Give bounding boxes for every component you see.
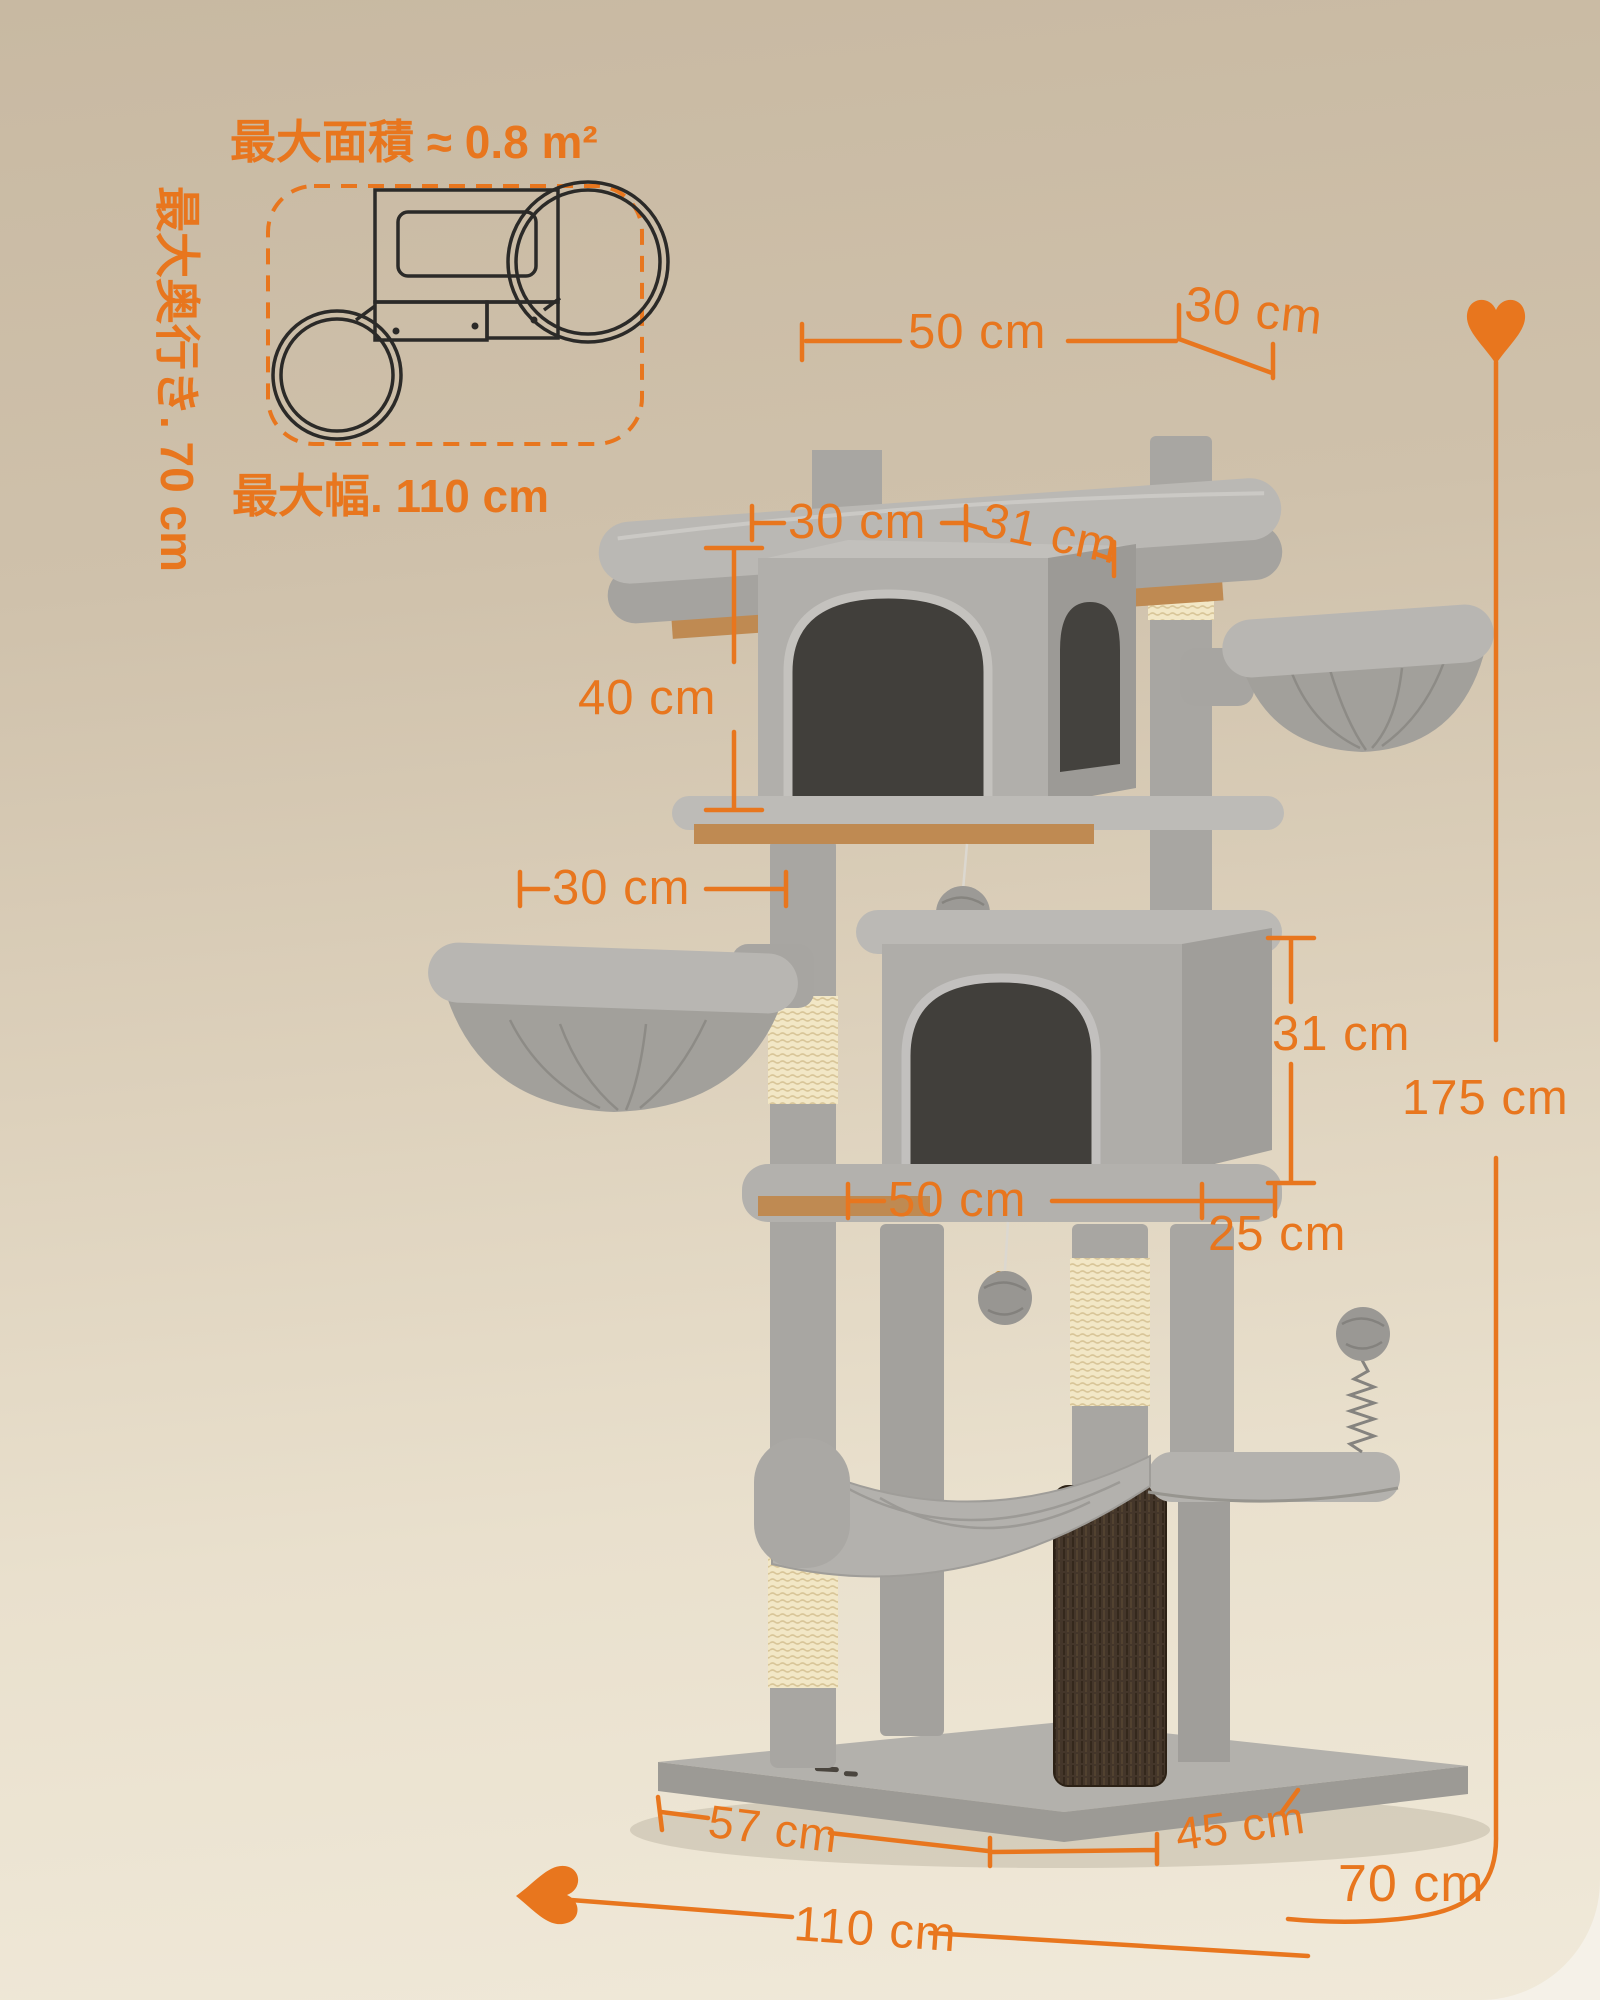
right-basket xyxy=(1180,603,1496,752)
floorplan-width-label: 最大幅. 110 cm xyxy=(232,460,549,526)
center-right-post-sisal-band xyxy=(1070,1258,1150,1406)
dim-label-left-basket-width: 30 cm xyxy=(552,860,690,916)
lower-cat-house xyxy=(856,910,1282,1172)
dim-line-top-platform-depth xyxy=(1179,339,1273,378)
lower-right-post-bottom xyxy=(1178,1500,1230,1762)
dim-label-lower-house-width: 50 cm xyxy=(888,1172,1026,1228)
hanging-pompom-lower xyxy=(978,1222,1032,1325)
upper-house-arch-opening xyxy=(788,594,988,802)
hammock-post-wrap xyxy=(754,1438,850,1568)
lower-house-arch-opening xyxy=(906,978,1096,1172)
floorplan-screw-dots xyxy=(393,317,538,335)
left-basket xyxy=(427,942,814,1112)
dim-label-footprint-depth: 70 cm xyxy=(1338,1854,1485,1914)
dim-label-upper-house-width: 30 cm xyxy=(788,494,926,550)
floorplan-left-basket-circle xyxy=(273,311,401,439)
dim-label-upper-house-height: 40 cm xyxy=(578,670,716,726)
floorplan-footprint-outline xyxy=(273,182,668,439)
floorplan-max-area-dashed-outline xyxy=(268,186,642,444)
dim-line-total-height xyxy=(1288,362,1496,1922)
upper-house-side-opening xyxy=(1060,602,1120,772)
dim-label-total-height: 175 cm xyxy=(1402,1070,1569,1126)
spring-toy-pompom-ball xyxy=(1336,1307,1390,1361)
heart-arrow-up-icon xyxy=(1467,300,1525,364)
floorplan-depth-label: 最大奥行き. 70 cm xyxy=(147,186,213,572)
floorplan-base-rect-left xyxy=(375,302,487,340)
spring-toy xyxy=(1350,1360,1374,1452)
middle-post xyxy=(880,1224,944,1736)
upper-board-wood-edge xyxy=(694,824,1094,844)
dim-label-lower-shelf-depth: 25 cm xyxy=(1208,1206,1346,1262)
left-post-sisal-band-upper xyxy=(768,996,838,1104)
product-dimension-image: 最大面積 ≈ 0.8 m² 最大奥行き. 70 cm 最大幅. 110 cm 5… xyxy=(0,0,1600,2000)
dim-label-lower-house-height: 31 cm xyxy=(1272,1006,1410,1062)
upper-cat-house xyxy=(758,540,1136,804)
floorplan-diagram xyxy=(268,182,668,444)
cat-tree-illustration xyxy=(0,0,1600,2000)
heart-arrow-left-icon xyxy=(516,1866,578,1924)
dim-label-top-platform-width: 50 cm xyxy=(908,304,1046,360)
dim-label-footprint-width: 110 cm xyxy=(792,1896,959,1963)
floorplan-area-label: 最大面積 ≈ 0.8 m² xyxy=(230,106,598,172)
